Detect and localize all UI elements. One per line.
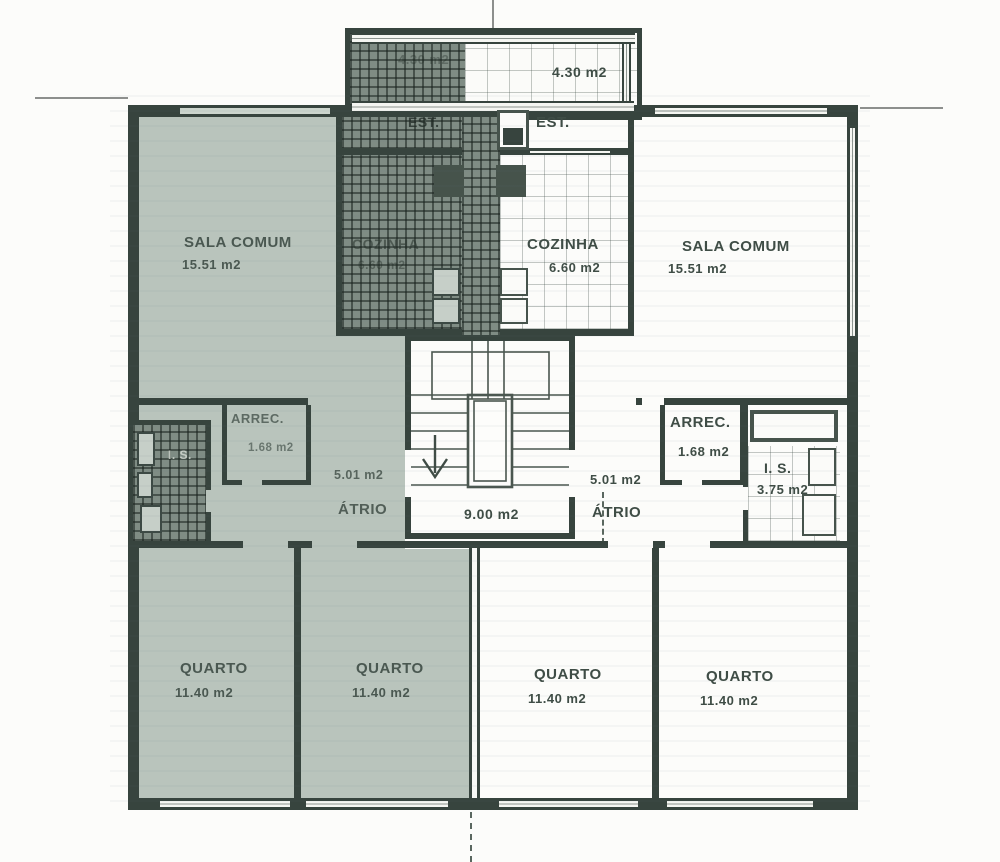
wall-sala-bottom-right xyxy=(664,398,853,405)
arrec-left-wall xyxy=(262,480,311,485)
room-name-label: ARREC. xyxy=(670,414,731,431)
room-name-label: COZINHA xyxy=(527,236,599,253)
room-name-label: QUARTO xyxy=(534,666,602,683)
floor-plan: 4.30 m2 EST. 4.30 m2 EST. SALA COMUM 15.… xyxy=(0,0,1000,862)
window-quarto-1-left xyxy=(160,799,290,809)
is-right-fixture xyxy=(802,494,836,536)
is-right-fixture xyxy=(808,448,836,486)
room-area-label: 15.51 m2 xyxy=(182,257,241,272)
window-sala-right xyxy=(655,106,827,116)
room-name-label: QUARTO xyxy=(356,660,424,677)
wall-corridor xyxy=(133,541,243,548)
room-area-label: 1.68 m2 xyxy=(248,442,294,454)
reference-line-right xyxy=(860,107,943,109)
arrec-left-wall xyxy=(222,480,242,485)
wall-corridor xyxy=(653,541,665,548)
room-area-label: 1.68 m2 xyxy=(678,444,729,459)
window-sala-left xyxy=(180,106,330,116)
room-name-label: ARREC. xyxy=(231,411,284,426)
room-area-label: 5.01 m2 xyxy=(334,468,383,482)
room-area-label: 4.30 m2 xyxy=(552,64,607,80)
room-name-label: ÁTRIO xyxy=(592,504,641,521)
arrec-left-wall xyxy=(306,405,311,485)
is-left-fixture xyxy=(137,472,153,498)
reference-line-left xyxy=(35,97,128,99)
room-area-label: 6.60 m2 xyxy=(549,260,600,275)
duct-box-fill xyxy=(503,128,523,145)
room-area-label: 11.40 m2 xyxy=(352,685,410,700)
arrec-right-wall xyxy=(660,405,665,485)
room-area-label: 9.00 m2 xyxy=(464,506,519,522)
counter-right xyxy=(500,268,528,296)
wall-corridor xyxy=(288,541,312,548)
room-area-label: 15.51 m2 xyxy=(668,261,727,276)
room-name-label: I. S. xyxy=(764,460,791,476)
stairs-down-arrow-icon xyxy=(423,435,447,477)
room-name-label: I. S. xyxy=(168,448,192,462)
room-area-label: 11.40 m2 xyxy=(175,685,233,700)
room-name-label: EST. xyxy=(536,114,570,131)
room-name-label: 4.30 m2 xyxy=(398,52,449,67)
is-left-fixture xyxy=(140,505,162,533)
is-right-closet xyxy=(750,410,838,442)
window-quarto-2-right xyxy=(667,799,813,809)
wall-kitchen-top-left xyxy=(342,148,465,155)
window-quarto-2-left xyxy=(306,799,448,809)
room-name-label: SALA COMUM xyxy=(682,238,790,255)
room-name-label: QUARTO xyxy=(180,660,248,677)
counter-right xyxy=(500,298,528,324)
wall-sala-bottom-left xyxy=(133,398,308,405)
arrec-left-wall xyxy=(222,405,227,485)
room-area-label: 3.75 m2 xyxy=(757,482,808,497)
service-duct-column xyxy=(462,117,500,341)
wall-corridor xyxy=(357,541,608,548)
counter-left xyxy=(432,268,460,296)
arrec-right-wall xyxy=(702,480,745,485)
wall-sala-bottom-right-stub xyxy=(636,398,642,405)
terrace-window xyxy=(352,33,635,44)
room-area-label: 5.01 m2 xyxy=(590,472,641,487)
wall-party xyxy=(469,548,480,798)
wall-corridor xyxy=(710,541,853,548)
window-right-wall xyxy=(848,128,857,336)
reference-line-bottom xyxy=(470,812,472,862)
room-name-label: EST. xyxy=(408,114,440,130)
appliance-dark-left xyxy=(434,165,464,197)
room-name-label: QUARTO xyxy=(706,668,774,685)
wall-quartos-right xyxy=(652,548,659,798)
reference-line-top xyxy=(492,0,494,30)
wall-sala-cozinha-right xyxy=(628,117,634,329)
wall-quartos-left xyxy=(294,548,301,798)
room-name-label: ÁTRIO xyxy=(338,501,387,518)
room-area-label: 11.40 m2 xyxy=(700,693,758,708)
is-left-fixture xyxy=(137,432,155,466)
room-area-label: 11.40 m2 xyxy=(528,691,586,706)
room-name-label: SALA COMUM xyxy=(184,234,292,251)
kitchen-door-band-right xyxy=(530,149,610,155)
wall-sala-cozinha-left xyxy=(336,117,342,329)
is-left-wall xyxy=(206,420,211,490)
window-quarto-1-right xyxy=(499,799,638,809)
window-under-terrace xyxy=(352,101,634,113)
room-area-label: 6.60 m2 xyxy=(358,258,406,272)
arrec-right-wall xyxy=(660,480,682,485)
counter-left xyxy=(432,298,460,324)
appliance-dark-right xyxy=(496,165,526,197)
room-name-label: COZINHA xyxy=(352,236,419,252)
